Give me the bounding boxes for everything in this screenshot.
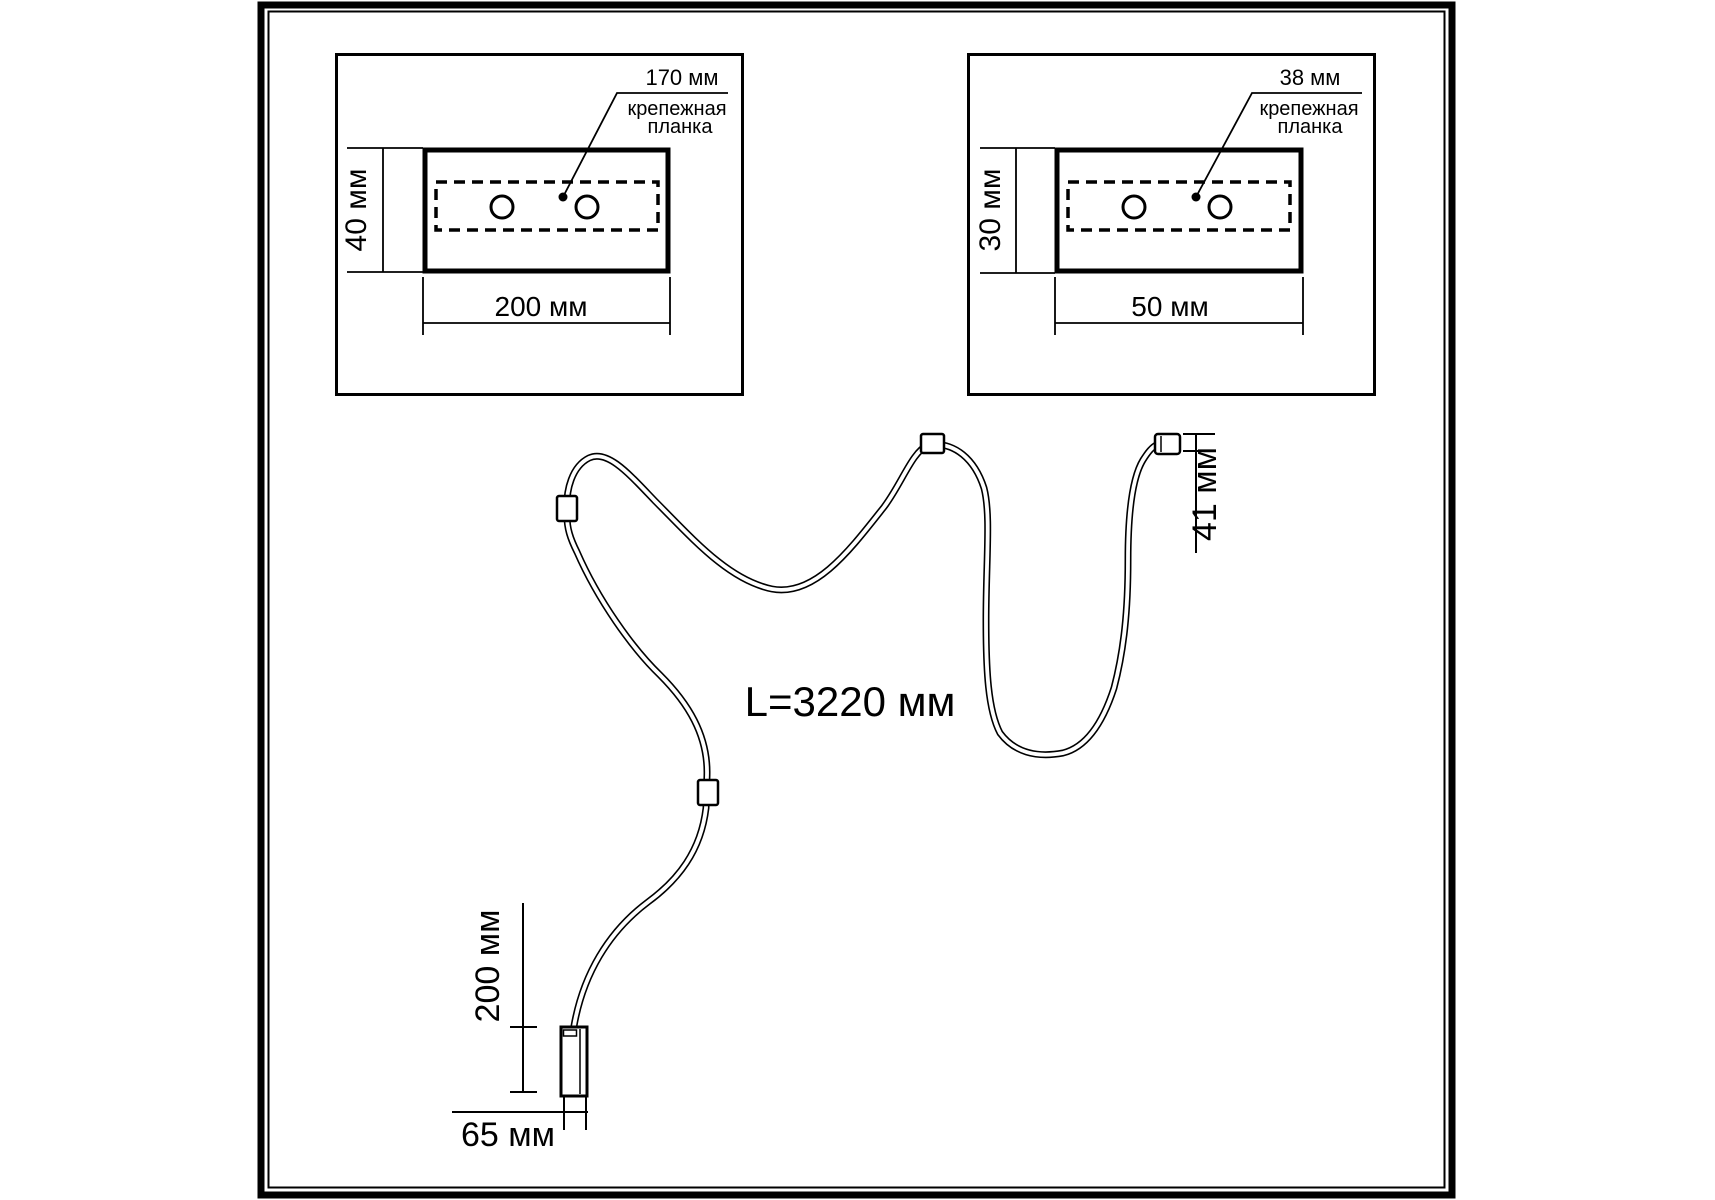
wand-body xyxy=(561,1027,587,1096)
wand-length-dimension: 200 мм xyxy=(469,903,537,1093)
small-mounting-strip-dashed xyxy=(1068,182,1290,230)
cable-core-highlight xyxy=(567,444,1158,1026)
mounting-hole xyxy=(1123,196,1145,218)
mounting-hole xyxy=(576,196,598,218)
small-plate-callout-line2: планка xyxy=(1278,116,1344,138)
technical-drawing-page: 170 мм крепежная планка 40 мм 200 мм 38 … xyxy=(0,0,1715,1200)
cable-wand xyxy=(561,1027,587,1096)
cable-total-length-label: L=3220 мм xyxy=(745,678,956,725)
flexible-cable xyxy=(567,444,1158,1026)
large-plate-height-label: 40 мм xyxy=(340,169,373,252)
small-plate-outline xyxy=(1057,150,1301,271)
large-plate-callout-line2: планка xyxy=(648,116,714,138)
cable-coupler-mid xyxy=(698,780,718,805)
small-plate-detail: 38 мм крепежная планка 30 мм 50 мм xyxy=(969,55,1375,395)
wand-length-dim-lines xyxy=(510,903,537,1093)
end-fitting-length-label: 41 мм xyxy=(1186,447,1224,541)
small-plate-spacing-label: 38 мм xyxy=(1280,65,1341,90)
large-plate-outline xyxy=(425,150,668,271)
cable-end-fitting xyxy=(1155,434,1180,454)
cable-assembly: L=3220 мм 41 мм 200 мм 65 мм xyxy=(452,434,1224,1154)
end-fitting-dimension: 41 мм xyxy=(1183,434,1224,553)
wand-length-label: 200 мм xyxy=(469,910,507,1023)
large-plate-width-label: 200 мм xyxy=(495,291,588,322)
cable-coupler-upper-left xyxy=(557,496,577,521)
cable-coupler-top xyxy=(921,434,944,453)
border-inner-line xyxy=(269,12,1445,1188)
large-mounting-strip-dashed xyxy=(436,182,658,230)
dimension-drawing: 170 мм крепежная планка 40 мм 200 мм 38 … xyxy=(0,0,1715,1200)
wand-width-label: 65 мм xyxy=(461,1116,555,1154)
wand-width-dimension: 65 мм xyxy=(452,1096,588,1154)
end-fitting-body xyxy=(1155,434,1180,454)
large-plate-spacing-label: 170 мм xyxy=(645,65,718,90)
large-plate-detail: 170 мм крепежная планка 40 мм 200 мм xyxy=(337,55,743,395)
small-plate-width-label: 50 мм xyxy=(1131,291,1208,322)
mounting-hole xyxy=(491,196,513,218)
small-plate-height-label: 30 мм xyxy=(974,169,1007,252)
mounting-hole xyxy=(1209,196,1231,218)
